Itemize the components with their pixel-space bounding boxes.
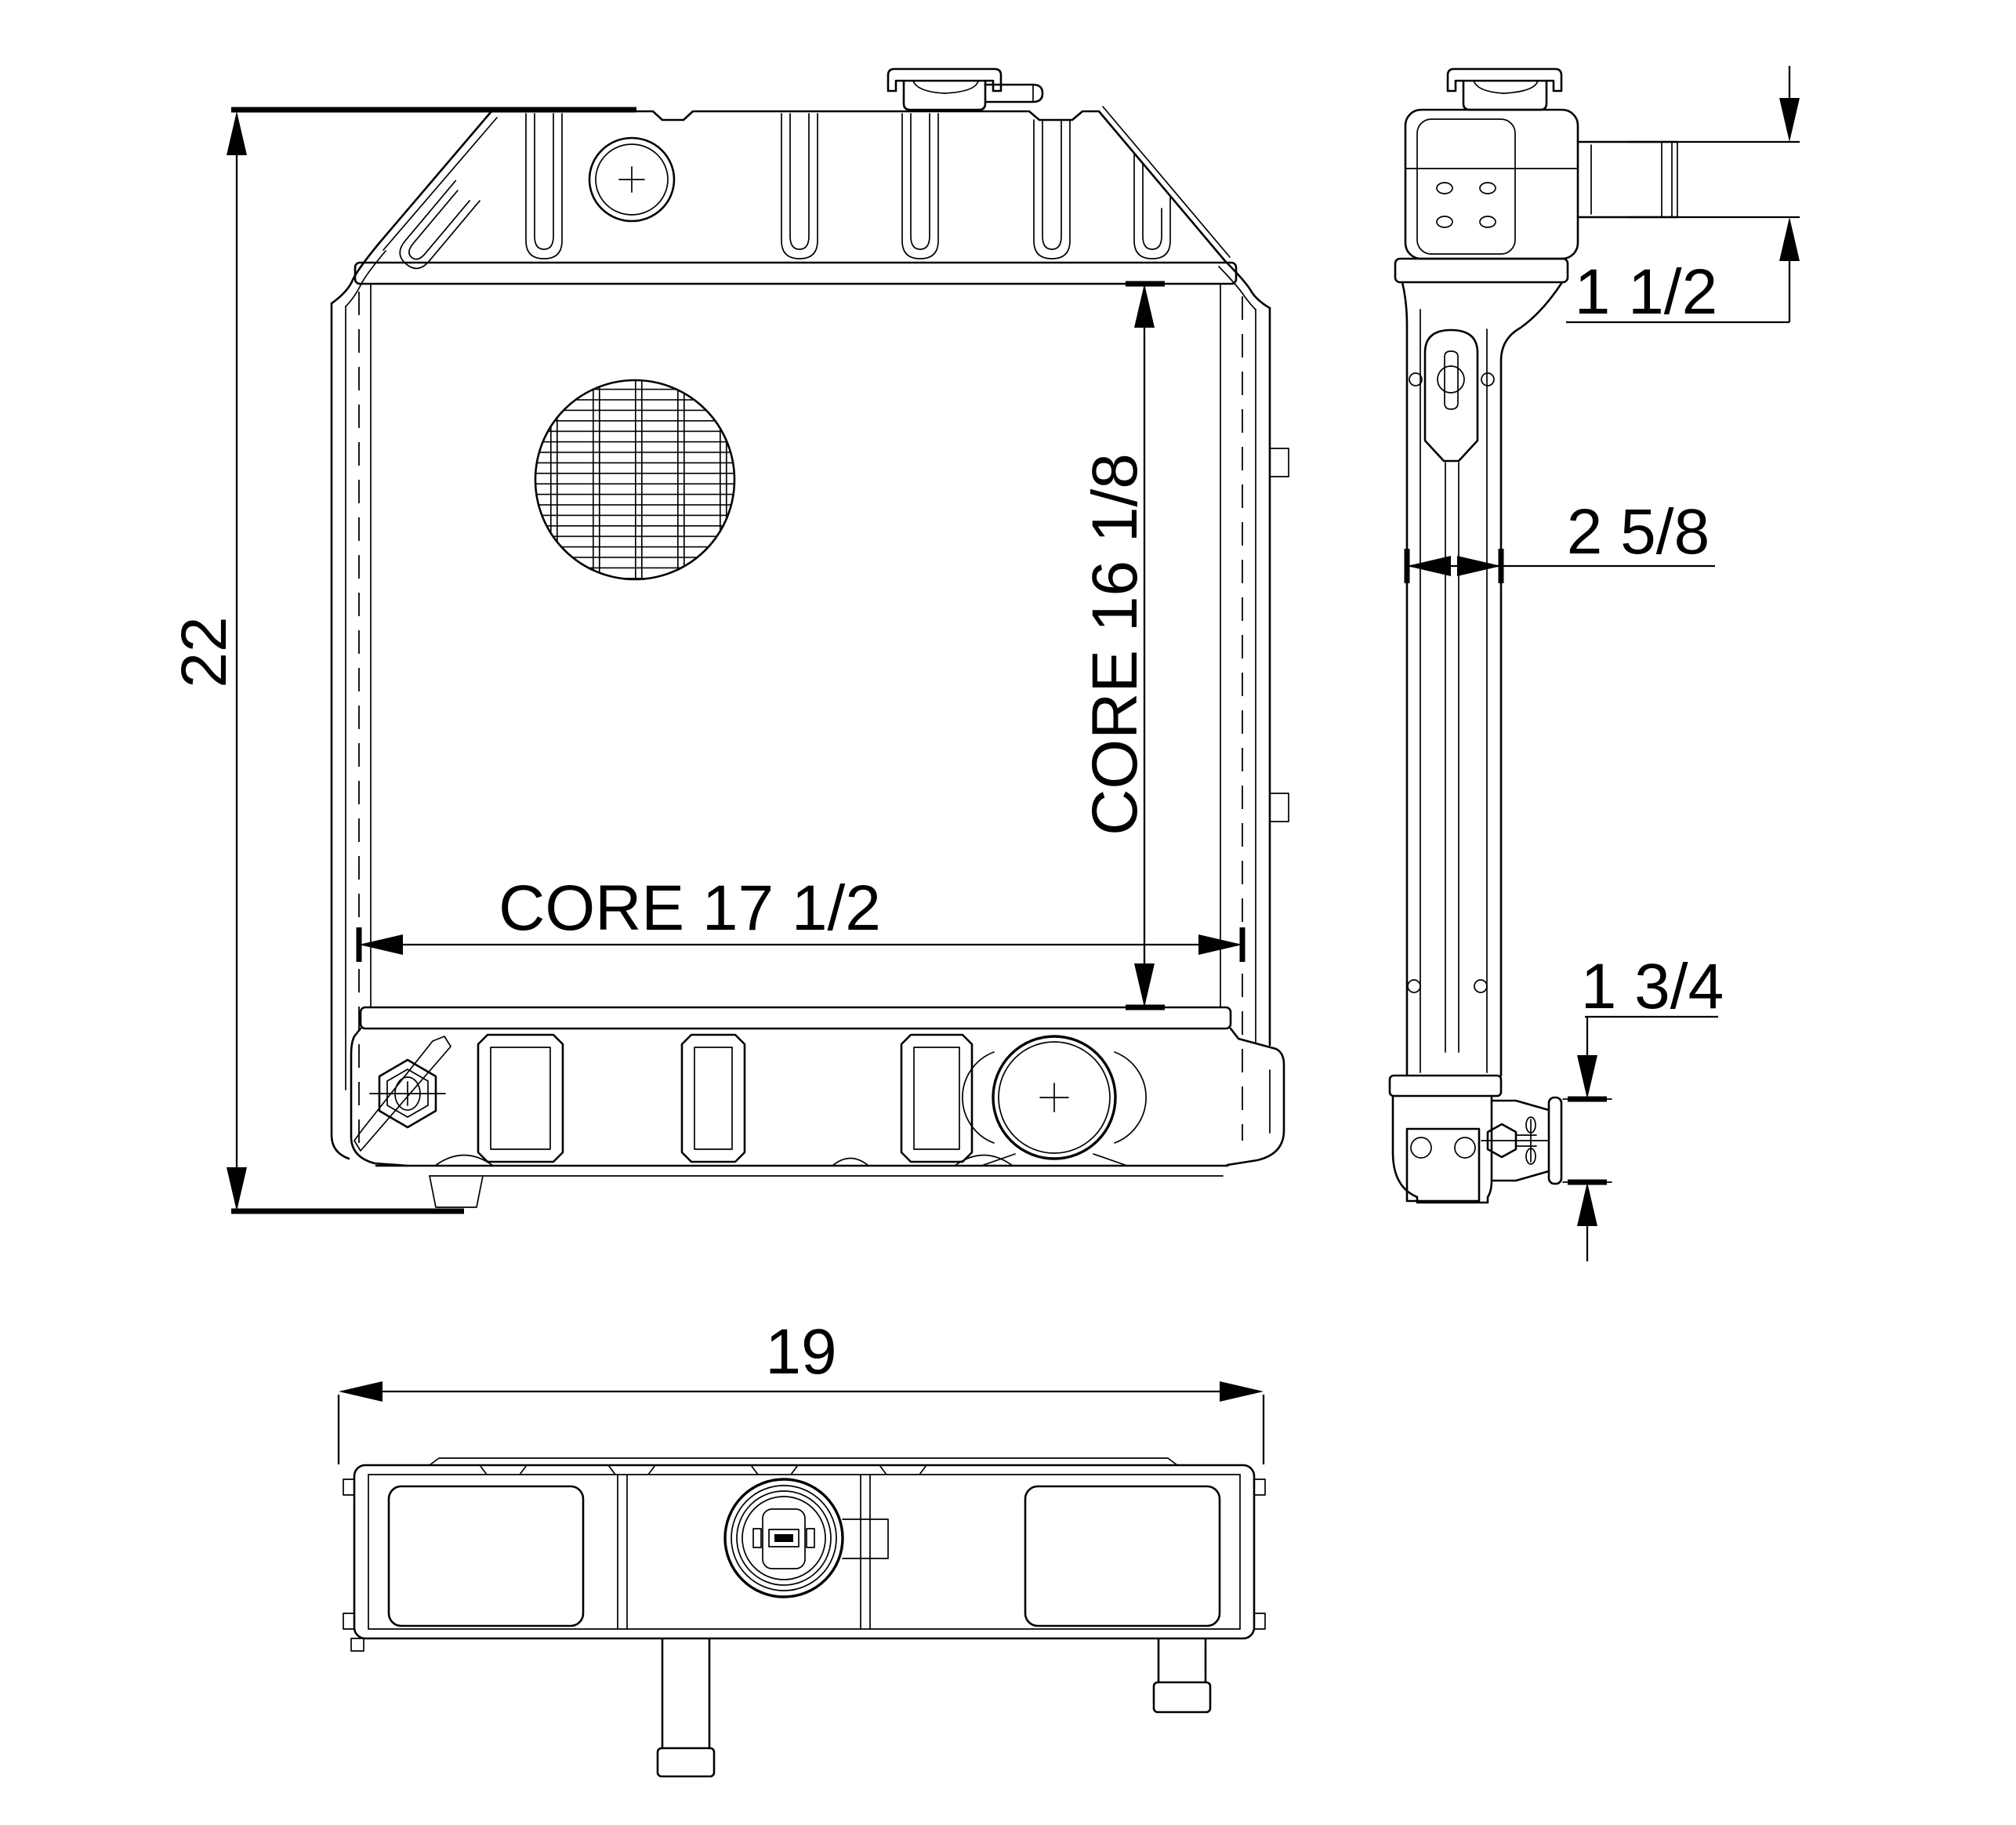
- inlet-pipe-plan: [658, 1638, 714, 1776]
- top-tank-side: [1395, 110, 1578, 282]
- lower-outlet-label: 1 3/4: [1581, 951, 1724, 1022]
- cap-top-view: [725, 1479, 888, 1597]
- dimension-upper-outlet: 1 1/2: [1566, 66, 1800, 328]
- tank-flange: [1395, 259, 1568, 282]
- left-foot: [351, 1638, 364, 1651]
- front-view: 22: [169, 69, 1289, 1211]
- dimension-overall-width: 19: [339, 1316, 1264, 1464]
- lower-header-plate: [361, 1007, 1231, 1029]
- overall-height-label: 22: [169, 616, 240, 688]
- foot-stub: [430, 1176, 483, 1207]
- side-tab-lower: [1270, 793, 1289, 822]
- right-side-channel: [1242, 296, 1289, 1141]
- dimension-core-height: CORE 16 1/8: [1079, 284, 1165, 1007]
- bottom-bracket-plate: [1407, 1129, 1479, 1201]
- plan-panel-left: [389, 1486, 583, 1626]
- dimension-overall-height: 22: [169, 110, 636, 1211]
- radiator-dimensional-drawing: 22: [0, 0, 2016, 1825]
- bottom-tank: [351, 1007, 1284, 1207]
- core-width-label: CORE 17 1/2: [499, 873, 881, 944]
- right-tab-lower: [1254, 1613, 1265, 1629]
- plan-panel-right: [1025, 1486, 1220, 1626]
- dimension-core-width: CORE 17 1/2: [359, 873, 1242, 962]
- side-view: 1 1/2 2 5/8: [1390, 66, 1800, 1261]
- side-tab-upper: [1270, 448, 1289, 477]
- tank-rib-panels: [478, 1035, 972, 1162]
- outlet-pipe-plan: [1154, 1638, 1210, 1712]
- core-detail-circle: [535, 380, 734, 579]
- core-height-label: CORE 16 1/8: [1079, 453, 1151, 836]
- plan-dividers: [618, 1475, 870, 1629]
- left-side-channel: [332, 292, 359, 1159]
- left-slant: [379, 111, 491, 244]
- bottom-outlet-circle: [963, 1036, 1146, 1166]
- overall-width-label: 19: [765, 1316, 836, 1388]
- column-hole-left: [1408, 980, 1420, 992]
- dimension-lower-outlet: 1 3/4: [1563, 951, 1724, 1261]
- top-tank: [332, 69, 1270, 310]
- dimension-core-depth: 2 5/8: [1407, 496, 1715, 583]
- drain-petcock-front: [354, 1036, 451, 1151]
- mounting-bracket-keyhole: [1409, 330, 1494, 1052]
- right-tab-upper: [1254, 1479, 1265, 1495]
- left-tab-upper: [343, 1479, 354, 1495]
- side-column: [1402, 282, 1562, 1076]
- upper-outlet-label: 1 1/2: [1575, 256, 1717, 328]
- bottom-flange: [1390, 1076, 1501, 1096]
- tank-slots: [394, 114, 1170, 274]
- plan-outline: [343, 1458, 1265, 1651]
- upper-outlet-pipe: [1578, 142, 1677, 217]
- cap-side-fitting: [843, 1519, 888, 1558]
- center-mark: [1040, 1083, 1068, 1112]
- radiator-cap-side: [1448, 69, 1561, 110]
- tank-opening: [589, 138, 674, 221]
- column-hole-right: [1474, 980, 1487, 992]
- radiator-cap-front: [888, 69, 1042, 110]
- upper-header-plate: [355, 263, 1236, 284]
- bottom-tank-side: [1390, 1076, 1561, 1203]
- arrowhead-down: [227, 1167, 247, 1211]
- core-depth-label: 2 5/8: [1567, 496, 1710, 568]
- drawing-canvas: 22: [0, 0, 2016, 1825]
- left-tab-lower: [343, 1613, 354, 1629]
- center-mark: [619, 167, 644, 192]
- top-plan-view: 19: [339, 1316, 1265, 1776]
- arrowhead-up: [227, 111, 247, 155]
